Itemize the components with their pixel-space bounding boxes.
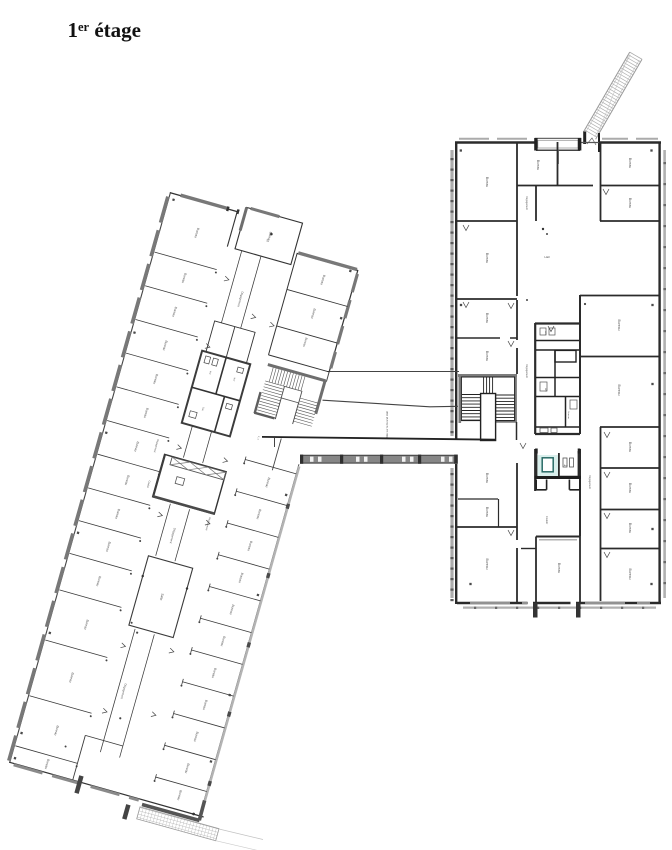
svg-text:Couloir: Couloir [545, 516, 549, 524]
svg-text:Serveur: Serveur [567, 411, 570, 419]
svg-text:Bureau: Bureau [485, 177, 489, 188]
svg-text:Bureau: Bureau [557, 563, 561, 574]
svg-text:Bureau: Bureau [536, 160, 540, 171]
svg-text:Dégagement: Dégagement [588, 475, 591, 489]
svg-text:Bureau: Bureau [617, 320, 621, 331]
svg-text:Asc.: Asc. [564, 464, 569, 467]
svg-text:Bureau: Bureau [617, 385, 621, 396]
svg-text:Bureau: Bureau [628, 158, 632, 169]
svg-text:Bureau: Bureau [485, 313, 489, 324]
svg-text:Bureau: Bureau [628, 523, 632, 534]
svg-text:Bureau: Bureau [628, 483, 632, 494]
svg-text:Hall: Hall [544, 255, 550, 259]
svg-text:Bureau: Bureau [485, 253, 489, 264]
svg-text:Vide sur le Grand Hall: Vide sur le Grand Hall [385, 411, 389, 439]
svg-text:Dégagement: Dégagement [525, 196, 528, 210]
svg-text:Bureau: Bureau [485, 351, 489, 362]
svg-text:WC: WC [544, 388, 546, 392]
svg-text:WC: WC [544, 331, 546, 335]
svg-text:Dégagement: Dégagement [525, 364, 528, 378]
svg-text:Bureau: Bureau [485, 473, 489, 484]
svg-text:Bureau: Bureau [628, 442, 632, 453]
svg-text:Bureau: Bureau [485, 507, 489, 518]
svg-text:Bureau: Bureau [485, 559, 489, 570]
svg-text:Bureau: Bureau [628, 569, 632, 580]
svg-text:Bureau: Bureau [628, 198, 632, 209]
